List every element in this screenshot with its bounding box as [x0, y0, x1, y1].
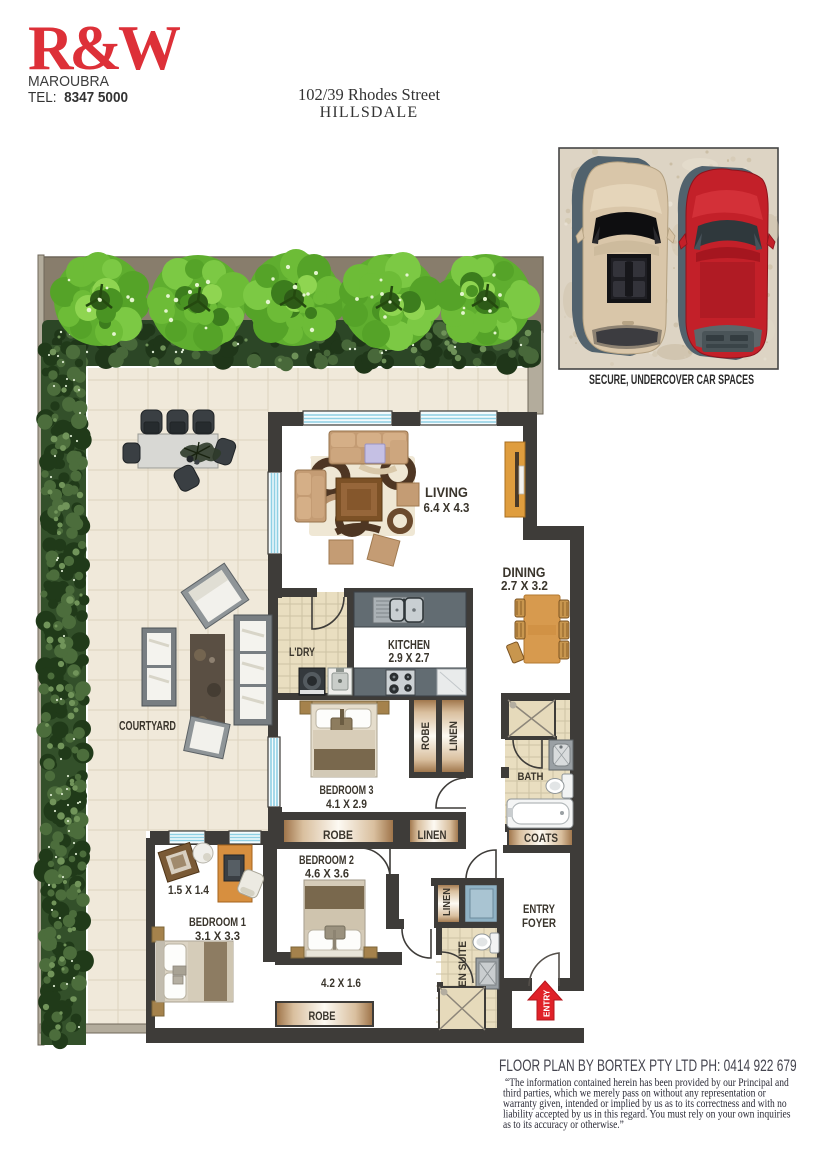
svg-text:FOYER: FOYER	[522, 917, 556, 930]
svg-text:BATH: BATH	[518, 770, 544, 783]
svg-text:SECURE, UNDERCOVER CAR SPACES: SECURE, UNDERCOVER CAR SPACES	[589, 372, 754, 388]
svg-text:ROBE: ROBE	[309, 1011, 336, 1023]
svg-text:6.4 X 4.3: 6.4 X 4.3	[424, 500, 470, 515]
svg-text:BEDROOM 3: BEDROOM 3	[320, 785, 374, 797]
svg-text:as to its accuracy or otherwis: as to its accuracy or otherwise.”	[503, 1118, 624, 1131]
svg-text:ENTRY: ENTRY	[541, 989, 551, 1017]
svg-text:HILLSDALE: HILLSDALE	[320, 104, 419, 121]
svg-text:TEL: 8347 5000: TEL: 8347 5000	[28, 90, 128, 106]
svg-text:4.6 X 3.6: 4.6 X 3.6	[305, 868, 349, 880]
svg-text:R&W: R&W	[28, 13, 181, 83]
svg-text:2.9 X 2.7: 2.9 X 2.7	[389, 651, 430, 665]
svg-text:LIVING: LIVING	[425, 485, 468, 500]
svg-text:ROBE: ROBE	[421, 722, 433, 750]
svg-text:MAROUBRA: MAROUBRA	[28, 74, 109, 90]
svg-text:ROBE: ROBE	[323, 830, 353, 843]
svg-text:102/39 Rhodes Street: 102/39 Rhodes Street	[298, 85, 440, 104]
svg-text:LINEN: LINEN	[418, 829, 447, 842]
svg-text:2.7 X 3.2: 2.7 X 3.2	[501, 578, 548, 593]
svg-text:LINEN: LINEN	[442, 888, 454, 916]
svg-text:FLOOR PLAN BY BORTEX PTY LTD P: FLOOR PLAN BY BORTEX PTY LTD PH: 0414 92…	[499, 1057, 797, 1075]
svg-text:COURTYARD: COURTYARD	[119, 720, 176, 734]
svg-text:3.1 X 3.3: 3.1 X 3.3	[195, 931, 240, 943]
svg-text:4.2 X 1.6: 4.2 X 1.6	[321, 977, 361, 990]
svg-text:BEDROOM 2: BEDROOM 2	[299, 855, 354, 867]
svg-text:4.1 X 2.9: 4.1 X 2.9	[326, 798, 367, 811]
svg-text:COATS: COATS	[524, 833, 558, 845]
svg-text:1.5 X 1.4: 1.5 X 1.4	[168, 884, 210, 897]
svg-text:L'DRY: L'DRY	[289, 647, 315, 659]
svg-text:EN SUITE: EN SUITE	[457, 941, 470, 987]
svg-text:ENTRY: ENTRY	[523, 903, 555, 916]
svg-text:BEDROOM 1: BEDROOM 1	[189, 916, 246, 929]
svg-text:LINEN: LINEN	[448, 721, 461, 751]
